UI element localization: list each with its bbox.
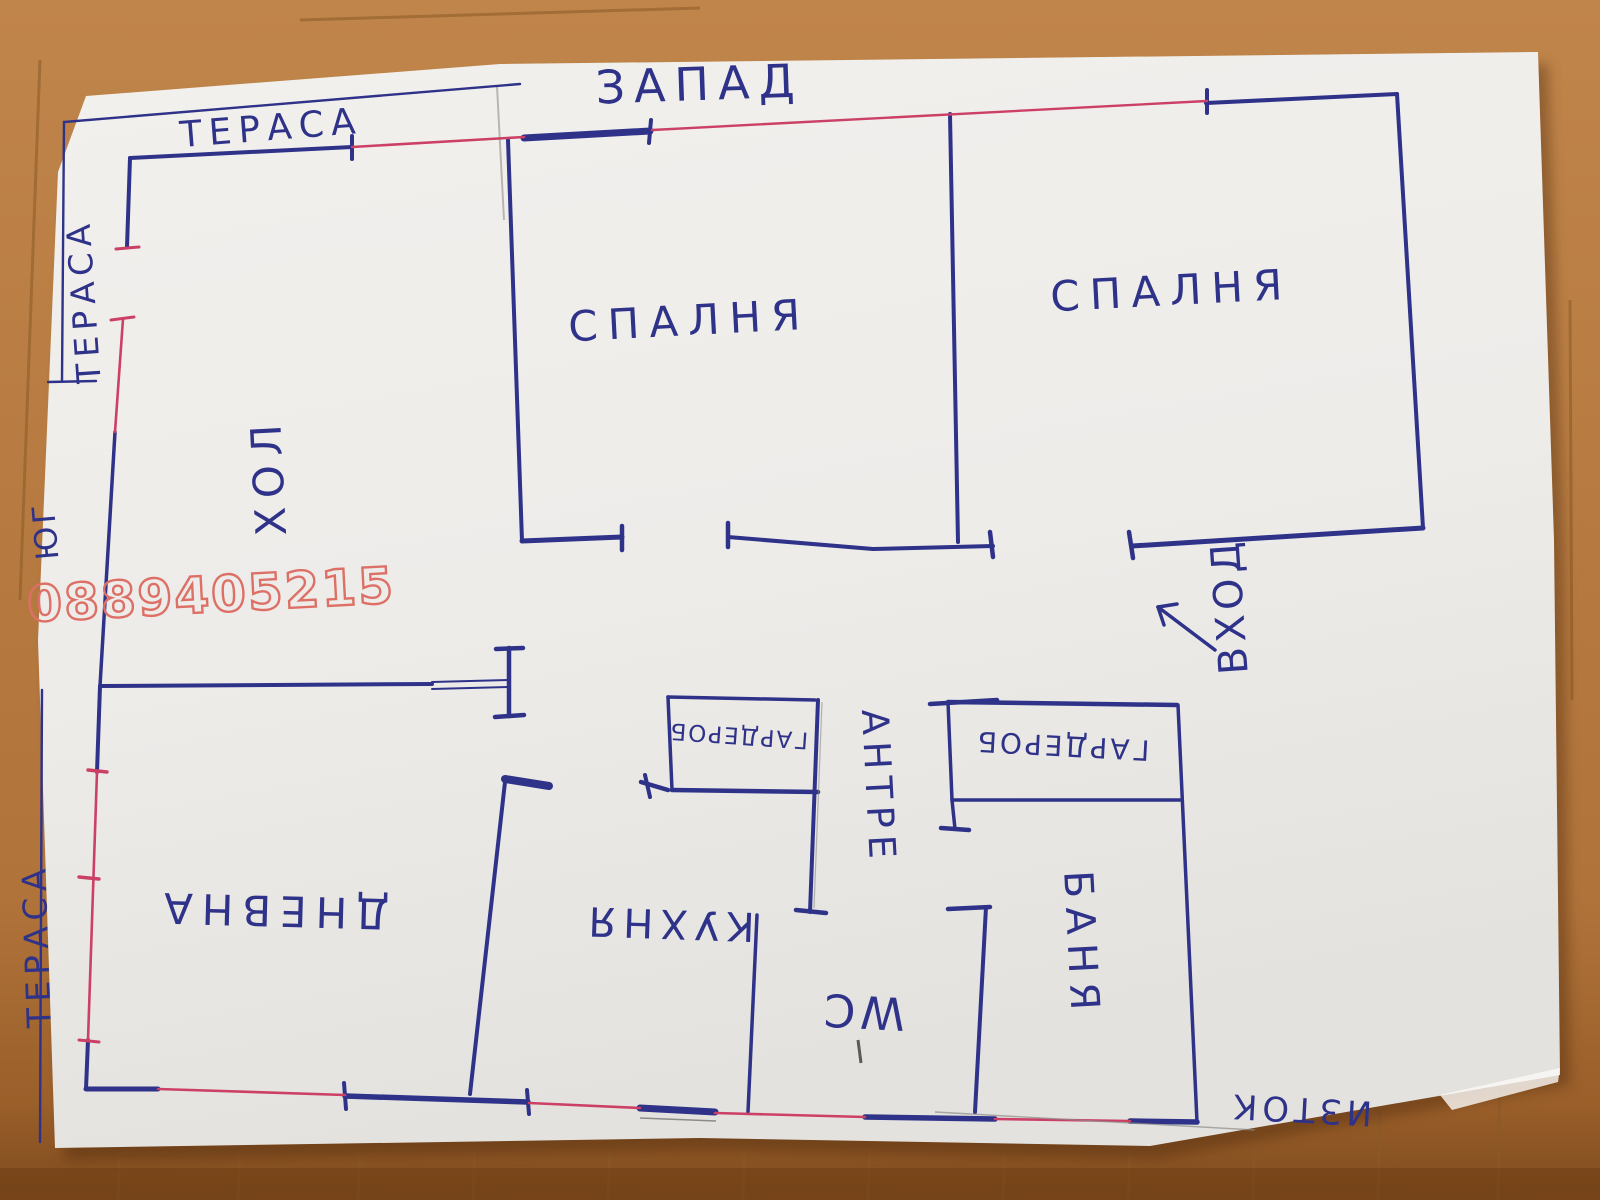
floorplan-photo-canvas: ЗАПАД ТЕРАСА ТЕРАСА СПАЛНЯ СПАЛНЯ ХОЛ ЮГ… <box>0 0 1600 1200</box>
entrance-label: ВХОД <box>1202 536 1257 676</box>
kitchen-label: КУХНЯ <box>581 897 756 949</box>
compass-west-label: ЗАПАД <box>595 53 805 114</box>
bathroom-label: БАНЯ <box>1054 869 1108 1020</box>
wc-label: WC <box>818 983 907 1040</box>
living-room-label: ДНЕВНА <box>154 883 389 938</box>
compass-south-label: ЮГ <box>26 500 67 561</box>
photo-of-floorplan: ЗАПАД ТЕРАСА ТЕРАСА СПАЛНЯ СПАЛНЯ ХОЛ ЮГ… <box>0 0 1600 1200</box>
hall-label: ХОЛ <box>241 414 296 537</box>
wood-dark-edge <box>0 1168 1600 1200</box>
entry-hall-label: АНТРЕ <box>853 708 904 866</box>
compass-east-label: ИЗТОК <box>1227 1085 1373 1132</box>
terrace-bottom-label: ТЕРАСА <box>14 862 59 1029</box>
